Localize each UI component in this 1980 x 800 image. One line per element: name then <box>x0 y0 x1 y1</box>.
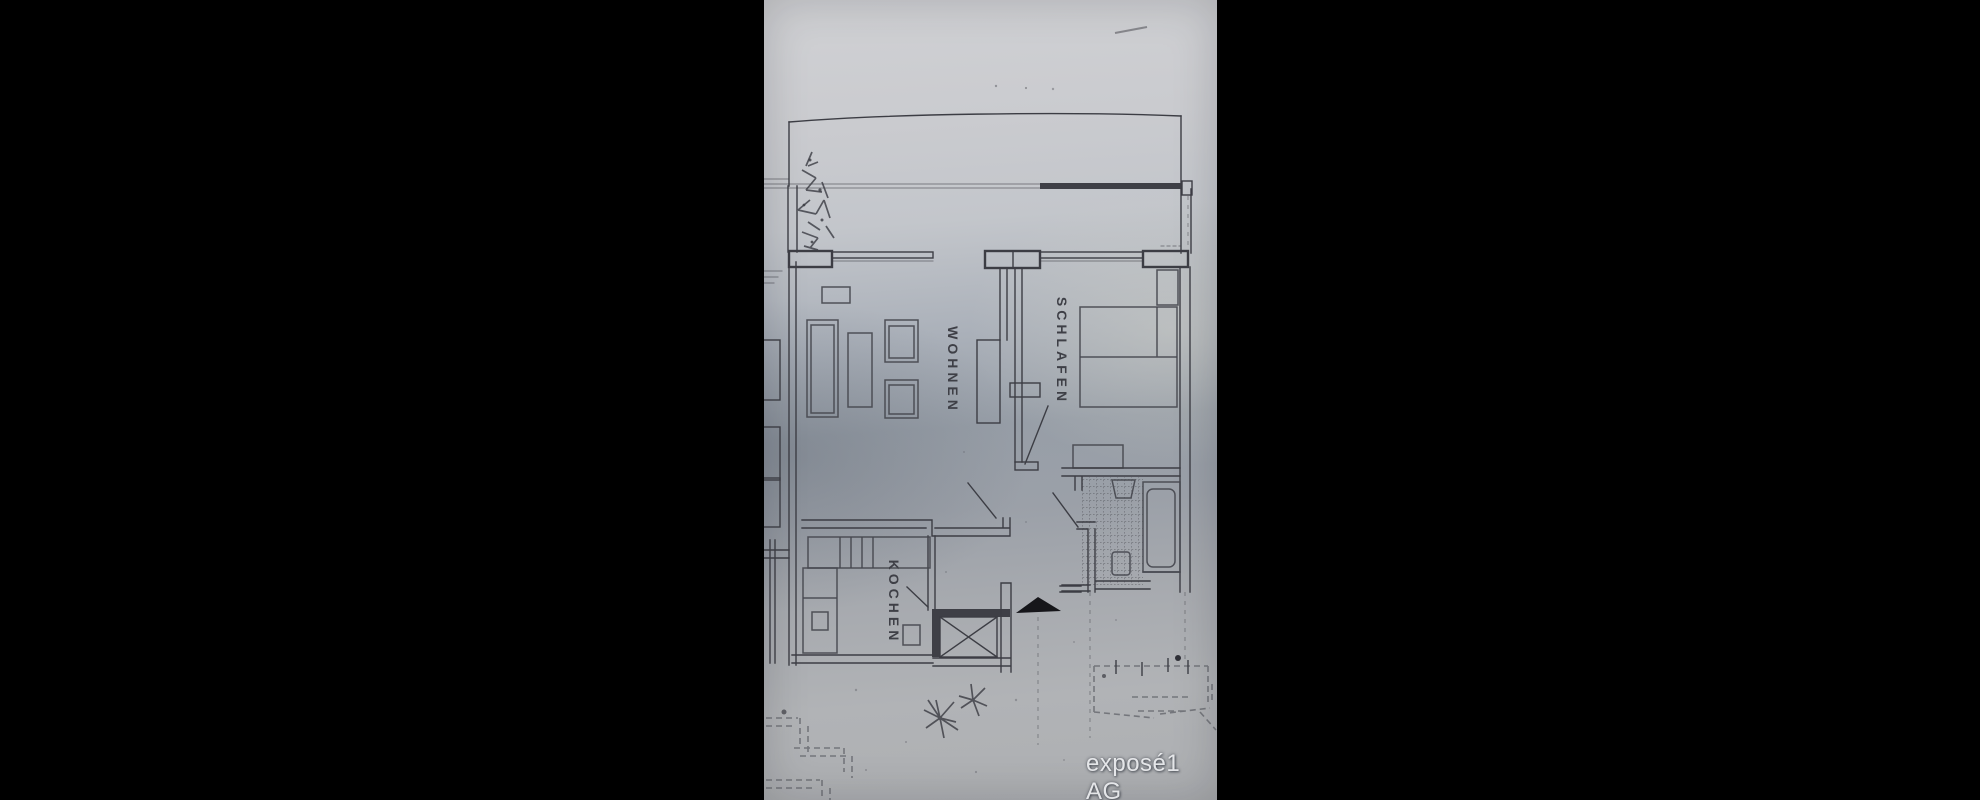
living-room-bottom-wall <box>802 518 1010 536</box>
living-room-door-swing <box>968 483 996 518</box>
screenshot-root: WOHNEN SCHLAFEN <box>0 0 1980 800</box>
balcony-railing <box>764 179 1192 195</box>
pen-mark <box>1115 27 1147 33</box>
room-label-kochen: KOCHEN <box>886 560 902 645</box>
sofa <box>807 320 838 417</box>
kitchen: KOCHEN <box>792 536 1010 666</box>
exterior-right-wall <box>1180 189 1191 592</box>
armchair <box>885 380 918 418</box>
plant-sketch <box>798 152 834 250</box>
floorplan-photo: WOHNEN SCHLAFEN <box>764 0 1217 800</box>
entrance-arrow-icon <box>1016 597 1061 613</box>
coffee-table <box>848 333 872 407</box>
neighbor-unit-fragment <box>764 271 789 663</box>
kitchen-sink <box>812 612 828 630</box>
side-table <box>822 287 850 303</box>
bedroom: SCHLAFEN <box>1010 270 1178 468</box>
facade-wall <box>789 251 1188 268</box>
bathroom <box>1053 468 1180 592</box>
armchair <box>885 320 918 362</box>
duct-shaft <box>977 340 1000 423</box>
kitchen-door-swing <box>907 587 928 607</box>
partition-wall <box>1000 268 1022 462</box>
balcony-divider-wall <box>788 186 797 252</box>
planter-sketch <box>1094 655 1216 730</box>
watermark: exposé1 AG <box>1086 750 1217 800</box>
elevator-shaft <box>932 609 1010 657</box>
bedroom-window <box>1040 252 1143 261</box>
living-room: WOHNEN <box>802 268 1038 536</box>
double-bed <box>1080 307 1177 407</box>
nightstand <box>1157 270 1178 305</box>
shrub-sketch <box>924 684 987 738</box>
balcony <box>764 114 1192 252</box>
floorplan-drawing: WOHNEN SCHLAFEN <box>764 0 1217 800</box>
exterior-left-wall <box>789 262 796 665</box>
kitchen-right-wall <box>928 536 935 610</box>
bedroom-door-swing <box>1025 406 1048 464</box>
wardrobe <box>1073 445 1123 468</box>
shaft-x-icon <box>940 617 997 657</box>
garden-path-sketch <box>766 710 852 800</box>
bathtub <box>1143 482 1180 572</box>
living-room-window <box>832 252 933 261</box>
kitchen-counter <box>803 537 930 653</box>
room-label-wohnen: WOHNEN <box>945 326 961 414</box>
room-label-schlafen: SCHLAFEN <box>1054 297 1070 405</box>
bathroom-door-swing <box>1053 493 1078 527</box>
kitchen-appliance <box>903 625 920 645</box>
wall-foot <box>1015 462 1038 470</box>
